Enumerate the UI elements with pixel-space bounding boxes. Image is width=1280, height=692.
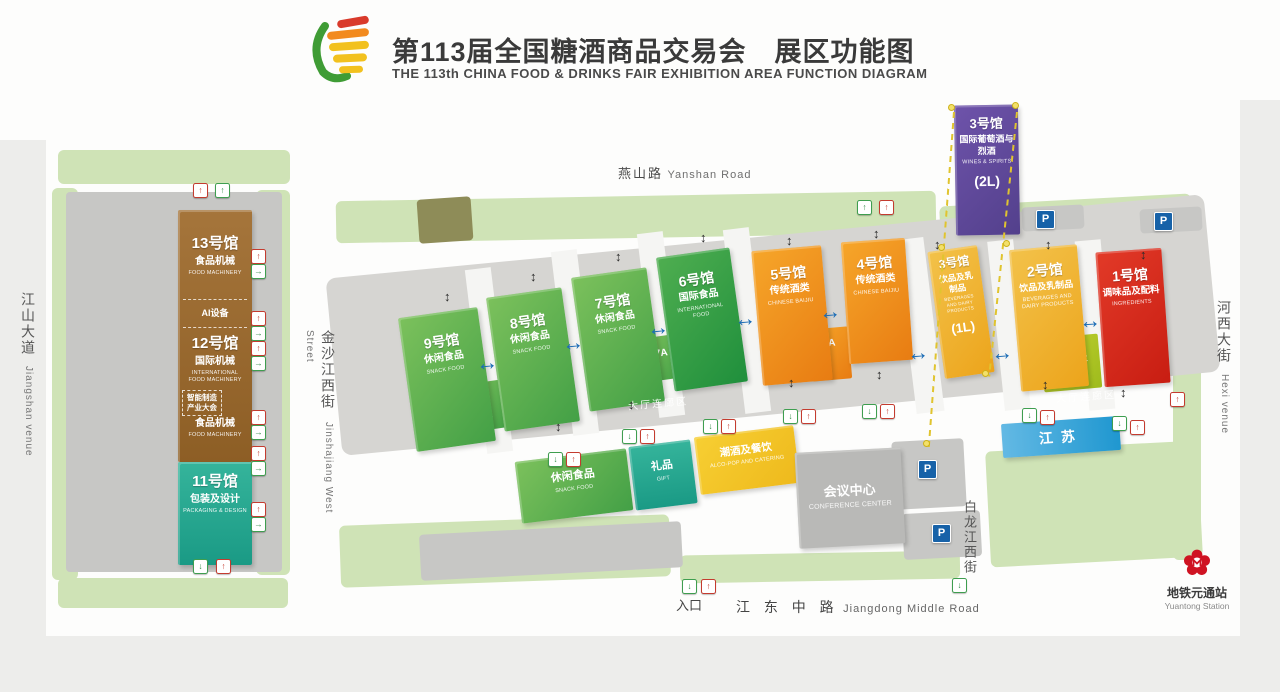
entrance-icon: ↓ xyxy=(193,559,208,574)
jiangsu-label: 江苏 xyxy=(1038,427,1083,446)
exit-icon: ↑ xyxy=(251,410,266,425)
road-jiangdong: 江 东 中 路 Jiangdong Middle Road xyxy=(736,597,980,617)
entrance-icon: → xyxy=(251,461,266,476)
right-edge-block xyxy=(1240,100,1280,692)
smart-manufacturing-zone: 智能制造 产业大会 xyxy=(182,390,222,416)
flow-arrow-icon: ↕ xyxy=(530,270,537,283)
metro-name-en: Yuantong Station xyxy=(1152,601,1242,611)
lawn xyxy=(58,150,290,184)
hall-3-2l-name: 3号馆 xyxy=(969,117,1002,132)
entrance-icon: → xyxy=(251,517,266,532)
link-node xyxy=(923,440,930,447)
entrance-icon: ↓ xyxy=(862,404,877,419)
road-jinshajiang: 金沙江西街 Jinshajiang West Street xyxy=(300,330,338,550)
page-subtitle: THE 113th CHINA FOOD & DRINKS FAIR EXHIB… xyxy=(392,66,927,81)
entrance-icon: → xyxy=(251,264,266,279)
road-jiangshan-zh: 江山大道 xyxy=(20,292,36,356)
flow-arrow-icon: ↕ xyxy=(876,368,883,381)
exit-icon: ↑ xyxy=(251,502,266,517)
gift-category-en: GIFT xyxy=(656,475,670,484)
gift-category-zh: 礼品 xyxy=(650,459,674,475)
hall-11-category-zh: 包装及设计 xyxy=(190,494,240,507)
connector-arrow-icon: ↔ xyxy=(818,300,842,324)
exit-icon: ↑ xyxy=(801,409,816,424)
connector-arrow-icon: ↔ xyxy=(733,307,757,331)
exit-icon: ↑ xyxy=(879,200,894,215)
flow-arrow-icon: ↕ xyxy=(1140,248,1147,261)
parking-icon: P xyxy=(1036,210,1055,229)
entrance-icon: ↓ xyxy=(783,409,798,424)
lawn xyxy=(58,578,288,608)
exit-icon: ↑ xyxy=(1040,410,1055,425)
conference-center[interactable]: 会议中心 CONFERENCE CENTER xyxy=(795,447,906,548)
hall-12b-category-en: FOOD MACHINERY xyxy=(188,432,241,439)
entrance-icon: ↓ xyxy=(703,419,718,434)
road-hexi-zh: 河西大街 xyxy=(1216,300,1232,364)
road-bailongjiang: 白龙江西街 xyxy=(960,500,979,610)
hall-9-name: 9号馆 xyxy=(423,332,461,352)
flow-arrow-icon: ↕ xyxy=(444,290,451,303)
parking-icon: P xyxy=(918,460,937,479)
link-node xyxy=(1003,240,1010,247)
exit-icon: ↑ xyxy=(1170,392,1185,407)
hall-5-category-en: CHINESE BAIJIU xyxy=(768,297,814,308)
hall-13-category-zh: 食品机械 xyxy=(195,256,235,269)
hall-3-1l-category-en: BEVERAGES AND DAIRY PRODUCTS xyxy=(939,293,981,316)
road-jiangshan: 江山大道 Jiangshan venue xyxy=(18,292,38,482)
entrance-icon: ↓ xyxy=(548,452,563,467)
exit-icon: ↑ xyxy=(216,559,231,574)
conference-en: CONFERENCE CENTER xyxy=(809,499,893,512)
ai-zone-label: AI设备 xyxy=(201,306,228,319)
flow-arrow-icon: ↕ xyxy=(615,250,622,263)
hall-1-name: 1号馆 xyxy=(1112,267,1149,285)
hall-13-category-en: FOOD MACHINERY xyxy=(188,270,241,277)
flow-arrow-icon: ↕ xyxy=(1045,238,1052,251)
metro-logo-icon xyxy=(1182,548,1212,578)
link-node xyxy=(982,370,989,377)
road-jiangshan-en: Jiangshan venue xyxy=(23,366,34,457)
entrance-icon: ↓ xyxy=(682,579,697,594)
road-yanshan-en: Yanshan Road xyxy=(667,169,751,181)
hall-11-category-en: PACKAGING & DESIGN xyxy=(183,508,247,515)
parking-icon: P xyxy=(1154,212,1173,231)
entrance-icon: → xyxy=(251,326,266,341)
flow-arrow-icon: ↕ xyxy=(1042,378,1049,391)
exit-icon: ↑ xyxy=(701,579,716,594)
road-yanshan: 燕山路 Yanshan Road xyxy=(618,163,751,183)
hall-4-category-en: CHINESE BAIJIU xyxy=(853,287,899,297)
bottom-edge-block xyxy=(46,636,1240,692)
hall-3-2l-level: (2L) xyxy=(974,173,1000,189)
exit-icon: ↑ xyxy=(566,452,581,467)
hall-5-name: 5号馆 xyxy=(770,265,807,283)
hall-11[interactable]: 11号馆 包装及设计 PACKAGING & DESIGN xyxy=(178,462,252,565)
gift-building[interactable]: 礼品 GIFT xyxy=(628,439,697,510)
exit-icon: ↑ xyxy=(1130,420,1145,435)
divider xyxy=(183,299,247,300)
entrance-icon: ↑ xyxy=(215,183,230,198)
hall-1[interactable]: 1号馆 调味品及配料 INGREDIENTS xyxy=(1095,248,1170,387)
flow-arrow-icon: ↕ xyxy=(628,398,635,411)
divider xyxy=(183,327,247,328)
flow-arrow-icon: ↕ xyxy=(555,420,562,433)
flow-arrow-icon: ↕ xyxy=(786,234,793,247)
hall-2-name: 2号馆 xyxy=(1026,262,1063,280)
hall-12-category-en: INTERNATIONAL FOOD MACHINERY xyxy=(184,370,246,384)
hall-6-name: 6号馆 xyxy=(678,270,716,290)
hall-12b-category-zh: 食品机械 xyxy=(195,418,235,431)
exit-icon: ↑ xyxy=(640,429,655,444)
road-hexi-en: Hexi venue xyxy=(1219,374,1230,434)
exit-icon: ↑ xyxy=(721,419,736,434)
parking-icon: P xyxy=(932,524,951,543)
exit-icon: ↑ xyxy=(193,183,208,198)
road-jinshajiang-zh: 金沙江西街 xyxy=(320,330,336,410)
road-bailongjiang-zh: 白龙江西街 xyxy=(962,500,977,575)
road-hexi: 河西大街 Hexi venue xyxy=(1214,300,1234,490)
hall-8-name: 8号馆 xyxy=(509,312,547,332)
hall-11-name: 11号馆 xyxy=(192,474,238,491)
hall-12-name: 12号馆 xyxy=(192,336,239,353)
entrance-icon: → xyxy=(251,425,266,440)
hall-3-1l-level: (1L) xyxy=(950,318,976,336)
hall-4[interactable]: 4号馆 传统酒类 CHINESE BAIJIU xyxy=(841,238,913,364)
exit-icon: ↑ xyxy=(880,404,895,419)
entrance-icon: ↓ xyxy=(622,429,637,444)
flow-arrow-icon: ↕ xyxy=(788,376,795,389)
exit-icon: ↑ xyxy=(251,341,266,356)
metro-name-zh: 地铁元通站 xyxy=(1152,584,1242,601)
connector-arrow-icon: ↔ xyxy=(561,331,585,355)
entrance-icon: ↓ xyxy=(1112,416,1127,431)
exit-icon: ↑ xyxy=(251,249,266,264)
connector-arrow-icon: ↔ xyxy=(906,341,930,365)
connector-arrow-icon: ↔ xyxy=(646,316,670,340)
road-yanshan-zh: 燕山路 xyxy=(618,166,663,181)
exit-icon: ↑ xyxy=(251,311,266,326)
fair-logo xyxy=(303,14,383,86)
alcopop-building[interactable]: 潮酒及餐饮 ALCO-POP AND CATERING xyxy=(694,425,800,495)
hall-2-category-en: BEVERAGES AND DAIRY PRODUCTS xyxy=(1019,292,1076,311)
entrance-icon: ↓ xyxy=(1022,408,1037,423)
flow-arrow-icon: ↕ xyxy=(873,227,880,240)
smart-line1: 智能制造 xyxy=(187,393,217,403)
exit-icon: ↑ xyxy=(251,446,266,461)
flow-arrow-icon: ↕ xyxy=(934,238,941,251)
hall-2[interactable]: 2号馆 饮品及乳制品 BEVERAGES AND DAIRY PRODUCTS xyxy=(1009,244,1089,391)
exhibition-map: 第113届全国糖酒商品交易会 展区功能图 THE 113th CHINA FOO… xyxy=(0,0,1280,692)
hall-4-category-zh: 传统酒类 xyxy=(855,273,896,288)
page-title: 第113届全国糖酒商品交易会 展区功能图 xyxy=(392,30,915,69)
entrance-icon: ↓ xyxy=(952,578,967,593)
entrance-icon: ↑ xyxy=(857,200,872,215)
link-node xyxy=(948,104,955,111)
connector-arrow-icon: ↔ xyxy=(475,351,499,375)
smart-line2: 产业大会 xyxy=(187,403,217,413)
entrance-label: 入口 xyxy=(676,595,702,614)
connector-arrow-icon: ↔ xyxy=(1078,309,1101,332)
flow-arrow-icon: ↕ xyxy=(700,231,707,244)
link-node xyxy=(1012,102,1019,109)
connector-arrow-icon: ↔ xyxy=(990,341,1014,365)
hall-5-category-zh: 传统酒类 xyxy=(769,283,810,299)
hall-13-12[interactable]: 13号馆 食品机械 FOOD MACHINERY AI设备 12号馆 国际机械 … xyxy=(178,210,252,462)
hall-12-category-zh: 国际机械 xyxy=(195,356,235,369)
hall-3-2l-category-en: WINES & SPIRITS xyxy=(962,158,1011,166)
conference-zh: 会议中心 xyxy=(823,482,876,501)
metro-station: 地铁元通站 Yuantong Station xyxy=(1152,548,1242,611)
hall-7-name: 7号馆 xyxy=(594,292,632,312)
ground-patch xyxy=(417,196,474,244)
entrance-icon: → xyxy=(251,356,266,371)
hall-13-name: 13号馆 xyxy=(192,236,239,253)
road-jiangdong-zh: 江 东 中 路 xyxy=(736,599,839,615)
hall-4-name: 4号馆 xyxy=(856,255,893,273)
hall-3-2l-category-zh: 国际葡萄酒与烈酒 xyxy=(959,134,1013,157)
hall-1-category-en: INGREDIENTS xyxy=(1112,299,1152,309)
flow-arrow-icon: ↕ xyxy=(1120,386,1127,399)
